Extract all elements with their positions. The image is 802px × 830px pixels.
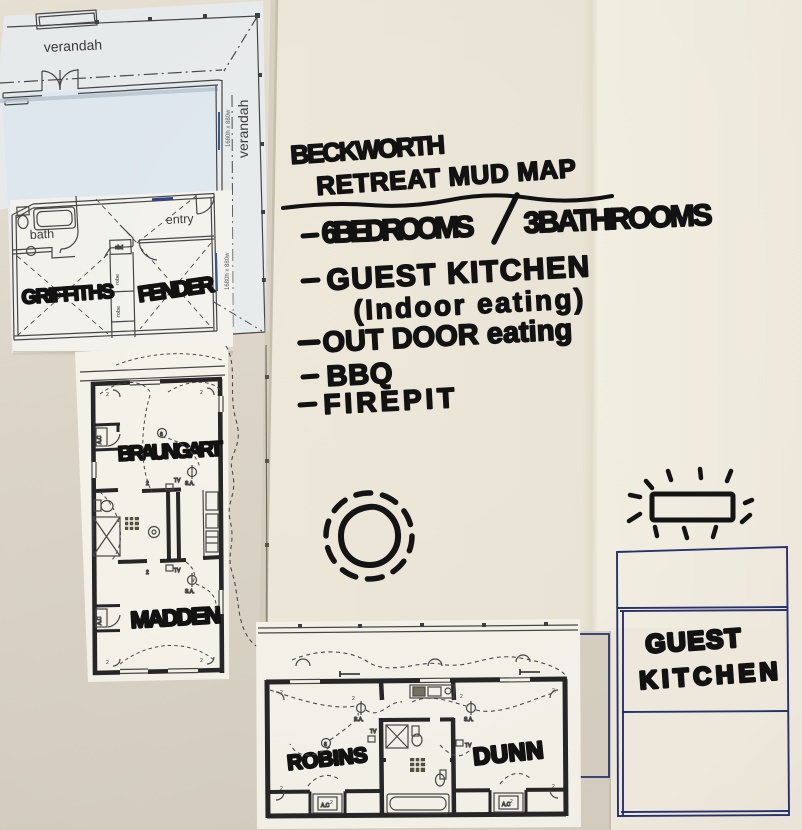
svg-text:cbd: cbd: [115, 245, 123, 251]
svg-text:verandah: verandah: [235, 100, 251, 158]
svg-text:S.A.: S.A.: [185, 589, 194, 595]
svg-text:TV: TV: [370, 729, 377, 735]
svg-text:2: 2: [200, 658, 203, 664]
svg-text:1680h x 880w: 1680h x 880w: [225, 252, 231, 290]
svg-text:2: 2: [552, 784, 555, 790]
svg-text:1680h x 880w: 1680h x 880w: [226, 109, 232, 147]
svg-text:A.C: A.C: [97, 616, 103, 625]
svg-text:2: 2: [106, 660, 109, 666]
svg-text:2: 2: [146, 570, 149, 576]
svg-text:2: 2: [106, 392, 109, 398]
svg-text:verandah: verandah: [43, 36, 102, 55]
svg-text:bath: bath: [29, 227, 54, 242]
svg-text:S.A.: S.A.: [464, 717, 473, 723]
svg-text:A.C: A.C: [321, 803, 330, 809]
svg-text:2: 2: [330, 800, 333, 806]
svg-text:TV: TV: [174, 478, 181, 484]
svg-text:entry: entry: [165, 212, 194, 227]
svg-text:TV: TV: [174, 568, 181, 574]
svg-text:MADDEN: MADDEN: [130, 602, 221, 633]
svg-text:2: 2: [200, 390, 203, 396]
svg-text:robe: robe: [116, 306, 122, 317]
svg-text:6BEDROOMS: 6BEDROOMS: [321, 210, 475, 250]
svg-text:2: 2: [460, 694, 463, 700]
svg-text:robe: robe: [115, 274, 121, 285]
svg-text:S.A.: S.A.: [185, 481, 194, 487]
svg-text:2: 2: [280, 786, 283, 792]
svg-text:A.C: A.C: [97, 435, 103, 444]
svg-text:2: 2: [352, 696, 355, 702]
svg-text:2: 2: [510, 799, 513, 805]
